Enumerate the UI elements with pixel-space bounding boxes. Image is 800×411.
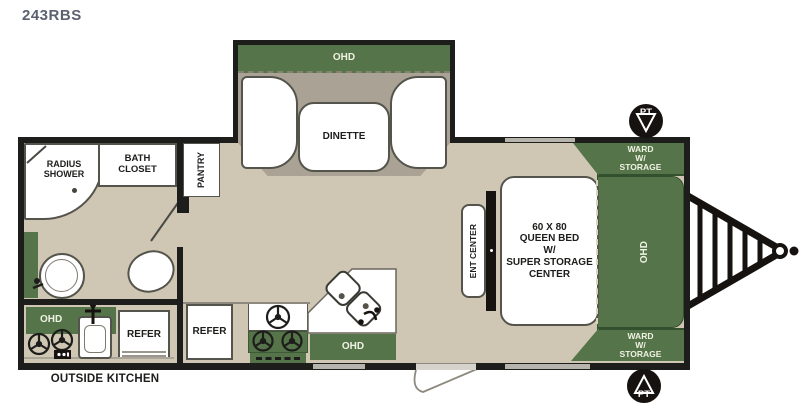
pt-top-label: PT [629, 107, 663, 118]
wardrobe-top-label: WARD W/ STORAGE [620, 145, 662, 172]
bath-counter-strip [24, 232, 38, 298]
range-lower [248, 331, 308, 353]
wall-pantry-stub [183, 197, 189, 213]
dinette-ohd-label: OHD [333, 52, 355, 63]
front-ohd-label-box: OHD [630, 176, 660, 328]
hitch-ball [790, 247, 799, 256]
entry-door-swing [415, 369, 477, 392]
entertainment-center: ENT CENTER [461, 204, 486, 298]
pantry-label: PANTRY [196, 152, 206, 188]
dinette-label: DINETTE [323, 131, 366, 142]
entry-door-opening [416, 363, 476, 370]
outside-kitchen-sink-bowl [84, 325, 106, 353]
pt-marker-bottom: PT [627, 369, 661, 403]
model-title: 243RBS [22, 8, 82, 25]
queen-bed-label: 60 X 80 QUEEN BED W/ SUPER STORAGE CENTE… [506, 222, 593, 281]
tv [486, 191, 496, 311]
wall-top-left [18, 137, 238, 143]
pt-bottom-label: PT [627, 389, 661, 400]
kitchen-refrigerator: REFER [186, 304, 233, 360]
kitchen-ohd: OHD [310, 334, 396, 360]
dinette-overhead-cabinet: OHD [238, 45, 450, 73]
dinette-table: DINETTE [298, 102, 390, 172]
outside-kitchen-caption: OUTSIDE KITCHEN [30, 373, 180, 386]
dinette-bench-right [390, 76, 447, 169]
wall-rear [18, 137, 24, 370]
bath-sink-bowl [45, 259, 78, 292]
window-kitchen [313, 363, 365, 370]
shower-drain [72, 188, 77, 193]
wardrobe-bottom-label: WARD W/ STORAGE [620, 332, 662, 359]
wardrobe-top: WARD W/ STORAGE [597, 143, 684, 176]
queen-bed: 60 X 80 QUEEN BED W/ SUPER STORAGE CENTE… [500, 176, 599, 326]
kitchen-counter-edge [183, 302, 310, 304]
kitchen-ohd-label: OHD [342, 341, 364, 352]
wardrobe-bottom: WARD W/ STORAGE [597, 328, 684, 361]
kitchen-refer-label: REFER [193, 326, 227, 337]
wall-bath-kitchen [177, 247, 183, 363]
window-bedroom [505, 363, 590, 370]
hitch-crossbars [700, 203, 760, 299]
floorplan-243rbs: 243RBS OHD DINETTE OHD OHD WARD W/ STORA… [0, 0, 800, 411]
hitch-frame [688, 196, 778, 306]
outside-refer-label: REFER [127, 329, 161, 340]
window-front-top [505, 137, 575, 143]
pt-marker-top: PT [629, 104, 663, 138]
pantry: PANTRY [183, 143, 220, 197]
hitch-coupler [774, 245, 786, 257]
ent-center-label: ENT CENTER [469, 224, 479, 278]
wall-front [684, 137, 690, 370]
radius-shower-label: RADIUS SHOWER [26, 159, 102, 179]
bath-closet-label: BATH CLOSET [118, 154, 157, 175]
bed-ohd-divider [596, 180, 598, 324]
bath-closet: BATH CLOSET [98, 143, 177, 187]
dinette-bench-left [241, 76, 298, 169]
range-vent [250, 353, 306, 363]
range-cooktop [248, 302, 308, 331]
front-ohd-label: OHD [639, 241, 650, 263]
outside-kitchen-ohd-label: OHD [40, 314, 62, 325]
wall-outside-kitchen [24, 299, 177, 305]
